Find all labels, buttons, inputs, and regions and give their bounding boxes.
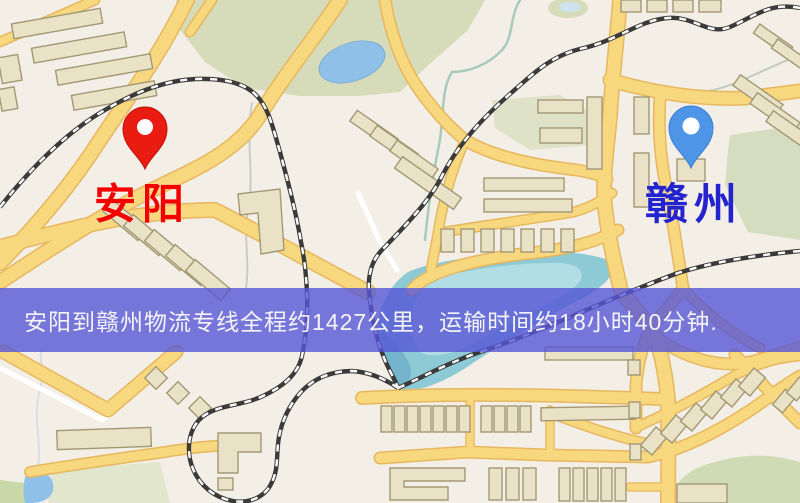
origin-pin-hole: [137, 119, 153, 135]
map-screenshot: 安阳 赣州 安阳到赣州物流专线全程约1427公里，运输时间约18小时40分钟.: [0, 0, 800, 503]
destination-city-label: 赣州: [645, 170, 743, 232]
route-info-banner: 安阳到赣州物流专线全程约1427公里，运输时间约18小时40分钟.: [0, 288, 800, 352]
origin-city-label: 安阳: [94, 171, 190, 232]
route-info-text: 安阳到赣州物流专线全程约1427公里，运输时间约18小时40分钟.: [0, 303, 718, 337]
map-canvas[interactable]: [0, 0, 800, 503]
destination-pin-hole: [683, 118, 700, 135]
